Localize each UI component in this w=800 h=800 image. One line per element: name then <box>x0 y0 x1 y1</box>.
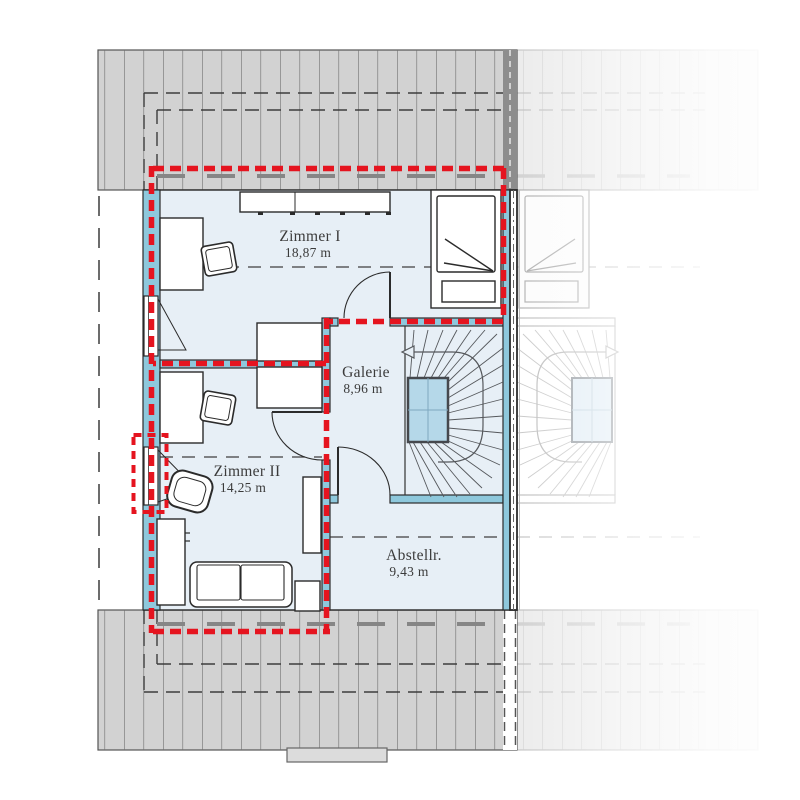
wardrobe <box>157 519 190 605</box>
roof-bottom-notch <box>287 748 387 762</box>
bed-chest <box>442 281 495 302</box>
wall-galerie-west-lower <box>322 460 330 610</box>
desk-chair-zimmer2 <box>200 390 237 425</box>
desk-chair-zimmer1 <box>201 241 238 276</box>
closet-zimmer2 <box>257 367 322 408</box>
room-area-galerie: 8,96 m <box>343 381 382 396</box>
floor-plan-svg: Zimmer I 18,87 m Zimmer II 14,25 m Galer… <box>0 0 800 800</box>
desk-zimmer2 <box>160 372 203 443</box>
wall-stub-door-abstellraum <box>330 495 338 503</box>
desk-zimmer1 <box>160 218 203 290</box>
side-table <box>295 581 320 611</box>
shelf <box>303 477 321 553</box>
room-area-zimmer2: 14,25 m <box>220 480 267 495</box>
room-label-zimmer1: Zimmer I <box>279 228 340 245</box>
room-label-zimmer2: Zimmer II <box>214 463 281 480</box>
neighbor-fade-overlay <box>517 38 800 764</box>
sofa <box>190 562 292 607</box>
bed <box>431 190 501 308</box>
room-area-abstellraum: 9,43 m <box>389 564 428 579</box>
sideboard <box>240 192 391 215</box>
floor-plan: Zimmer I 18,87 m Zimmer II 14,25 m Galer… <box>0 0 800 800</box>
wall-abstellraum-north <box>390 495 503 503</box>
room-area-zimmer1: 18,87 m <box>285 245 332 260</box>
room-label-galerie: Galerie <box>342 364 390 381</box>
room-label-abstellraum: Abstellr. <box>386 547 442 564</box>
closet-zimmer1 <box>257 323 322 361</box>
